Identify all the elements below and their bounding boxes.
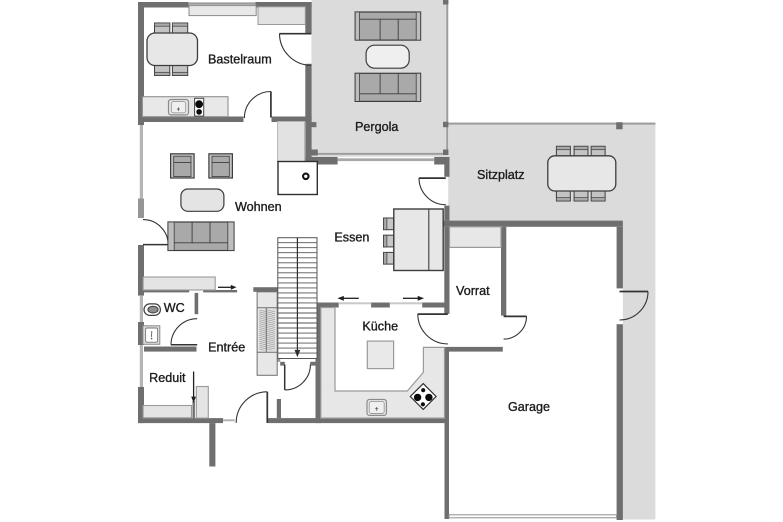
svg-text:Bastelraum: Bastelraum [208, 53, 272, 67]
svg-text:Entrée: Entrée [208, 341, 245, 355]
svg-text:Küche: Küche [362, 320, 398, 334]
svg-text:Wohnen: Wohnen [235, 200, 282, 214]
svg-text:Garage: Garage [508, 400, 550, 414]
svg-text:Essen: Essen [334, 231, 369, 245]
svg-text:Reduit: Reduit [149, 371, 186, 385]
svg-text:Pergola: Pergola [355, 120, 398, 134]
svg-text:Sitzplatz: Sitzplatz [477, 168, 525, 182]
svg-text:Vorrat: Vorrat [456, 284, 490, 298]
svg-text:WC: WC [164, 301, 185, 315]
